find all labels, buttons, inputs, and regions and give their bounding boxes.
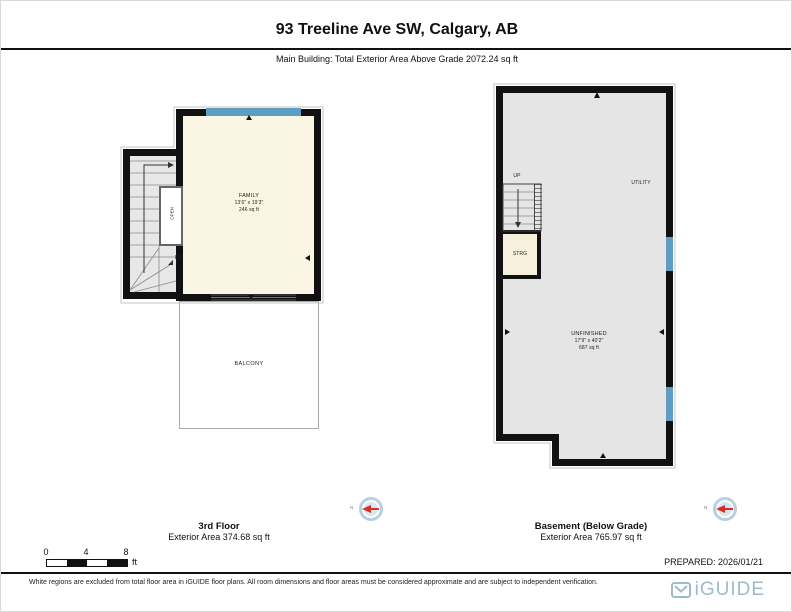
stairs-wall-left: [123, 149, 130, 299]
compass-icon: N: [359, 497, 383, 521]
basement-wall-top: [496, 86, 673, 93]
compass-icon: N: [713, 497, 737, 521]
unfinished-area: 687 sq ft: [529, 345, 649, 352]
disclaimer-text: White regions are excluded from total fl…: [29, 579, 649, 586]
basement-title: Basement (Below Grade): [491, 521, 691, 532]
basement-area: Exterior Area 765.97 sq ft: [491, 532, 691, 542]
prepared-date: PREPARED: 2026/01/21: [664, 557, 763, 567]
compass-north-label: N: [704, 505, 707, 510]
total-area-subtitle: Main Building: Total Exterior Area Above…: [1, 54, 792, 64]
floorplan-page: 93 Treeline Ave SW, Calgary, AB Main Bui…: [0, 0, 792, 612]
stairs-wall-top: [123, 149, 176, 156]
balcony-label: BALCONY: [189, 361, 309, 368]
basement-wall-bottom: [552, 459, 673, 466]
basement-window-lower: [666, 387, 673, 421]
family-window: [206, 108, 301, 116]
family-room-label: FAMILY: [189, 193, 309, 200]
open-label: OPEN: [170, 207, 175, 221]
page-title: 93 Treeline Ave SW, Calgary, AB: [1, 21, 792, 39]
family-room-label-block: FAMILY 13'6" x 19'3" 246 sq ft: [189, 193, 309, 214]
unfinished-dims: 17'9" x 40'2": [529, 338, 649, 345]
scale-tick-4: 4: [79, 547, 93, 557]
compass-needle: [716, 505, 725, 513]
compass-needle: [362, 505, 371, 513]
basement-wall-notch-h: [496, 434, 559, 441]
scale-tick-0: 0: [39, 547, 53, 557]
basement-wall-left: [496, 86, 503, 441]
storage-wall-bottom: [503, 275, 541, 279]
scale-bar: [46, 559, 128, 567]
basement-window-upper: [666, 237, 673, 271]
stairs-wall-bottom: [123, 292, 176, 299]
scale-unit-label: ft: [132, 557, 137, 567]
storage-label: STRG: [503, 251, 537, 258]
family-room-dims: 13'6" x 19'3": [189, 200, 309, 207]
up-label: UP: [505, 173, 529, 180]
compass-north-label: N: [350, 505, 353, 510]
family-room-area: 246 sq ft: [189, 207, 309, 214]
dn-label: DN: [175, 255, 182, 262]
iguide-logo: iGUIDE: [671, 579, 765, 601]
footer-divider: [1, 572, 792, 574]
iguide-logo-text: iGUIDE: [695, 579, 765, 601]
third-floor-area: Exterior Area 374.68 sq ft: [119, 532, 319, 542]
unfinished-label-block: UNFINISHED 17'9" x 40'2" 687 sq ft: [529, 331, 649, 352]
utility-label: UTILITY: [611, 180, 671, 187]
open-to-below-shaft: OPEN: [159, 186, 183, 246]
third-floor-title: 3rd Floor: [119, 521, 319, 532]
unfinished-label: UNFINISHED: [529, 331, 649, 338]
storage-wall-right: [537, 230, 541, 279]
scale-tick-8: 8: [119, 547, 133, 557]
header-divider: [1, 48, 792, 50]
basement-floor-notch: [559, 416, 666, 459]
basement-caption: Basement (Below Grade) Exterior Area 765…: [491, 521, 691, 542]
stairs-railing-hatch: [534, 184, 542, 231]
iguide-logo-icon: [671, 582, 691, 598]
third-floor-caption: 3rd Floor Exterior Area 374.68 sq ft: [119, 521, 319, 542]
